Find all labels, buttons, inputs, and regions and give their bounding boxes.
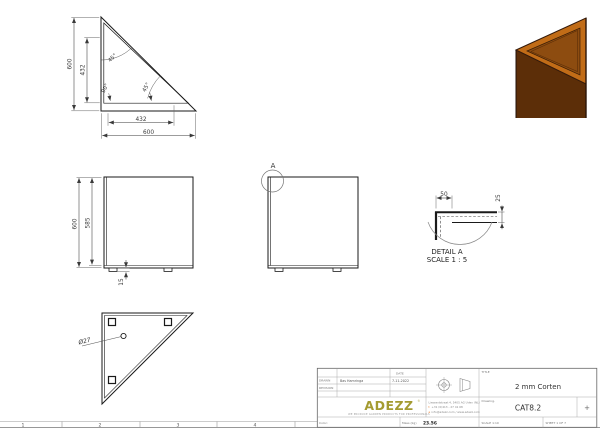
email-line: info@adezz.com / www.adezz.com xyxy=(432,410,481,414)
front-angle-corner: 90° xyxy=(101,83,111,95)
color-label: Color: xyxy=(319,421,328,425)
detail-dim-height: 25 xyxy=(496,194,502,202)
detail-callout-label: A xyxy=(271,162,276,170)
drain-hole-label: Ø27 xyxy=(77,337,92,347)
drawing-sheet: 600 432 432 600 45° 90° 45° 600 585 15 xyxy=(0,0,600,430)
zone-number-2: 2 xyxy=(99,422,102,428)
bottom-outer-edge xyxy=(102,313,193,404)
front-dim-width: 600 xyxy=(143,130,154,136)
detail-dim-width: 50 xyxy=(440,192,448,198)
front-dim-height: 600 xyxy=(68,58,74,69)
bottom-foot-bottom-left xyxy=(109,377,116,384)
zone-number-4: 4 xyxy=(254,422,257,428)
side-a-extension-lines xyxy=(77,177,130,271)
drawing-label: Drawing. xyxy=(482,399,495,403)
side-b-inner-edge xyxy=(268,177,358,266)
detail-a-view: 50 25 DETAIL A SCALE 1 : 5 xyxy=(427,192,505,264)
adezz-logo: ADEZZ xyxy=(364,398,413,413)
side-a-inner-edge xyxy=(104,177,193,266)
scale-label: SCALE 1:10 xyxy=(482,421,499,425)
side-a-body xyxy=(104,177,193,268)
front-dimension-lines xyxy=(74,18,195,135)
sheet-label: SHEET 1 OF 7 xyxy=(546,421,567,425)
side-b-foot-right xyxy=(333,268,341,271)
bottom-foot-top-right xyxy=(165,319,172,326)
detail-dimension-lines xyxy=(437,198,502,229)
zone-number-1: 1 xyxy=(22,422,25,428)
detail-title: DETAIL A xyxy=(431,248,463,256)
side-a-dim-height: 600 xyxy=(73,218,79,229)
detail-callout-circle xyxy=(262,170,284,192)
bottom-foot-top-left xyxy=(109,319,116,326)
phone-line: +31 (0)413 - 27 41 68 xyxy=(432,405,464,409)
drawn-label: DRAWN xyxy=(319,379,330,383)
side-b-foot-left xyxy=(275,268,283,271)
front-dim-inner-width: 432 xyxy=(135,117,146,123)
revision-plus-mark: + xyxy=(584,404,590,412)
date-label: DATE xyxy=(396,371,404,375)
detail-scale: SCALE 1 : 5 xyxy=(427,256,467,264)
mass-label: Mass (kg) xyxy=(402,421,417,425)
side-a-foot-left xyxy=(109,268,117,271)
revision-label: REVISION xyxy=(319,386,333,390)
logo-tagline: WE PRODUCE GARDEN PRODUCTS FOR PROFESSIO… xyxy=(348,412,430,416)
render-3d xyxy=(516,18,586,118)
bottom-view: Ø27 xyxy=(77,313,193,404)
front-dim-inner-height: 432 xyxy=(81,64,87,75)
title-label: TITLE xyxy=(481,370,490,374)
side-view-a: 600 585 15 xyxy=(73,177,194,286)
title-value: 2 mm Corten xyxy=(515,383,561,391)
side-b-body xyxy=(268,177,358,268)
drawing-value: CAT8.2 xyxy=(515,404,542,413)
logo-registered-mark: ® xyxy=(418,399,421,403)
side-a-dim-foot: 15 xyxy=(119,278,125,286)
front-view: 600 432 432 600 45° 90° 45° xyxy=(68,17,197,139)
date-value: 7-11-2022 xyxy=(392,379,409,383)
front-extension-lines xyxy=(72,18,196,139)
drain-hole xyxy=(121,333,126,338)
title-block: DRAWN Bas Hamringa DATE 7-11-2022 REVISI… xyxy=(317,368,597,427)
side-view-b: A xyxy=(262,162,359,271)
email-prefix: e xyxy=(429,410,431,414)
cad-canvas: 600 432 432 600 45° 90° 45° 600 585 15 xyxy=(0,0,600,430)
front-angle-top: 45° xyxy=(107,53,118,64)
drawn-value: Bas Hamringa xyxy=(340,379,363,383)
detail-boundary-arc xyxy=(428,222,492,245)
mass-value: 23.56 xyxy=(423,420,437,426)
side-a-dim-inner-height: 585 xyxy=(86,217,92,228)
detail-extension-lines xyxy=(436,196,505,223)
bottom-inner-edge xyxy=(105,316,188,399)
zone-number-3: 3 xyxy=(177,422,180,428)
detail-hidden-lines xyxy=(438,217,497,238)
side-a-foot-right xyxy=(164,268,172,271)
address-line: Liessentstraat 4, 5405 AG Uden (NL) xyxy=(429,401,480,405)
